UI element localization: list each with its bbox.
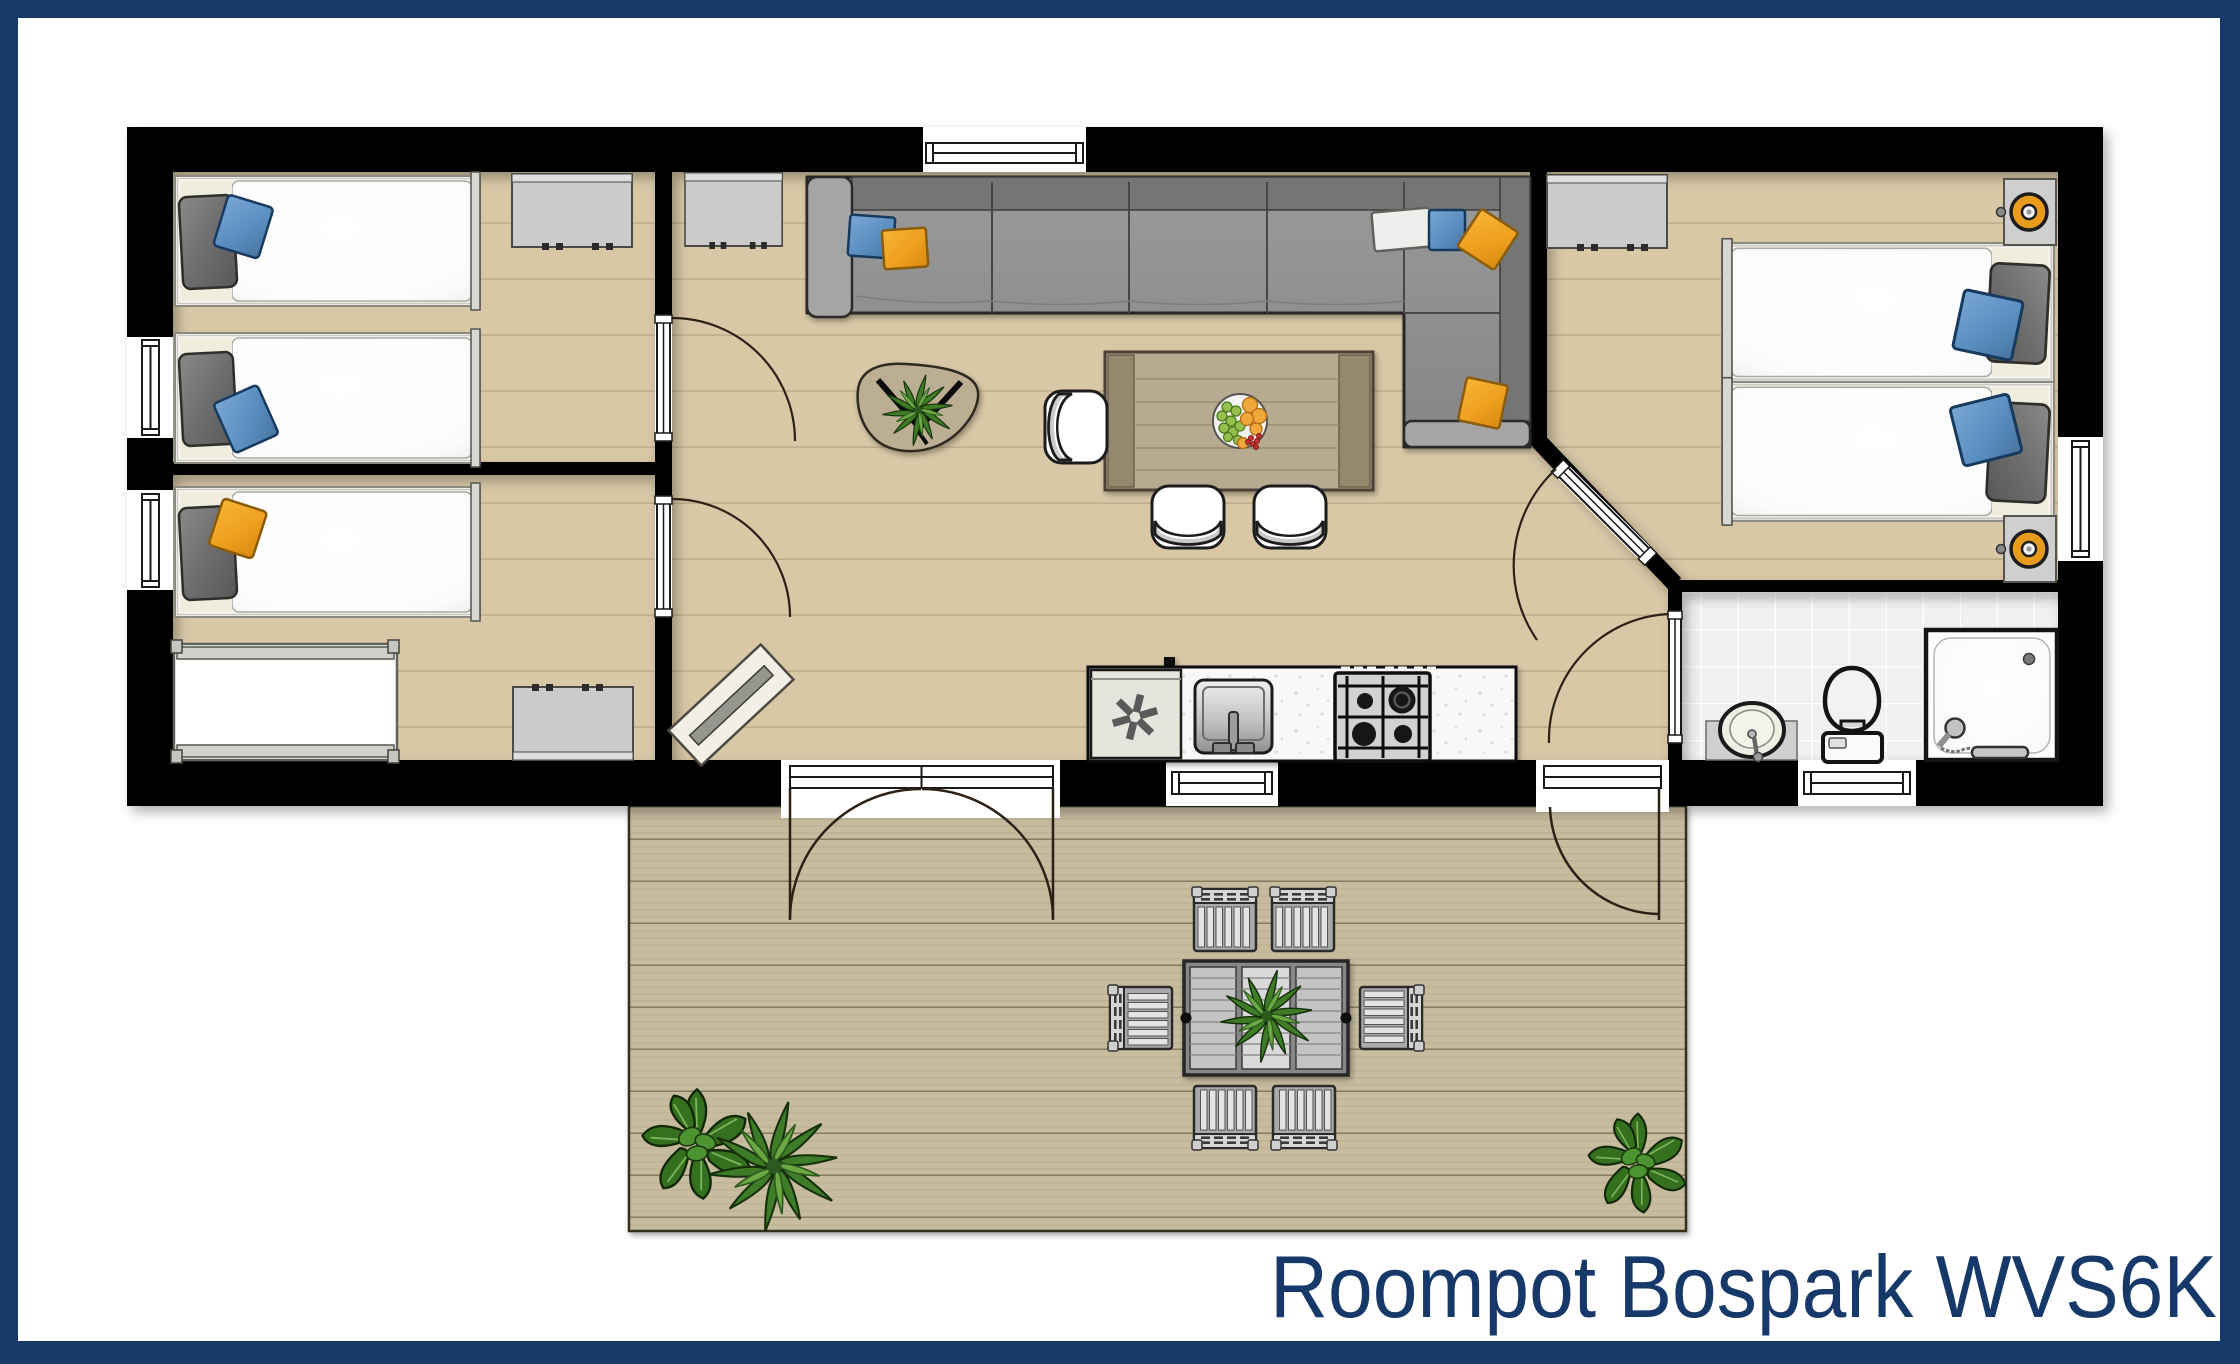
- svg-text:Roompot Bospark WVS6K: Roompot Bospark WVS6K: [1270, 1237, 2217, 1336]
